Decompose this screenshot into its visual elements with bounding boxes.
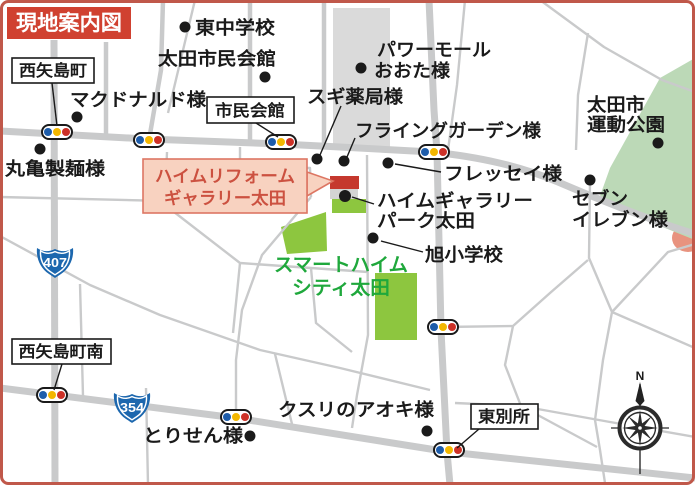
intersection-civic-hall: 市民会館 [207, 97, 294, 123]
smart-heim-field-north [332, 199, 366, 213]
label-sugi: スギ薬局様 [307, 86, 404, 107]
destination-building [330, 176, 359, 189]
intersection-nishiyajima-minami-label: 西矢島町南 [19, 342, 104, 361]
intersection-nishiyajima-label: 西矢島町 [19, 61, 87, 80]
poi-dot-torisen [245, 431, 256, 442]
label-kusuri-no-aoki: クスリのアオキ様 [278, 399, 435, 420]
poi-dot-sports-park [653, 138, 664, 149]
label-higashi-junior-high: 東中学校 [195, 17, 276, 38]
intersection-civic-hall-label: 市民会館 [215, 101, 285, 120]
poi-dot-seven-eleven [585, 175, 596, 186]
label-mcdonalds: マクドナルド様 [70, 89, 207, 110]
traffic-light-icon [428, 320, 458, 334]
label-fressay: フレッセイ様 [444, 163, 563, 184]
label-flying-garden: フライングガーデン様 [355, 120, 542, 141]
site-map: 407 354 [0, 0, 695, 485]
poi-dot-mcdonalds [72, 112, 83, 123]
traffic-light-icon [221, 410, 251, 424]
traffic-light-icon [419, 145, 449, 159]
traffic-light-icon [266, 135, 296, 149]
page-title: 現地案内図 [16, 11, 122, 35]
label-smart-heim-line2: シティ太田 [292, 276, 390, 299]
route-354-number: 354 [120, 400, 145, 415]
label-sports-park-line1: 太田市 [587, 94, 645, 115]
label-ota-civic-hall: 太田市民会館 [158, 48, 276, 69]
compass-north-label: N [636, 369, 645, 383]
traffic-light-icon [134, 133, 164, 147]
callout-line1: ハイムリフォーム [155, 167, 295, 186]
label-seven-eleven-line2: イレブン様 [572, 209, 669, 230]
title-banner: 現地案内図 [7, 7, 131, 39]
label-marugame: 丸亀製麺様 [4, 158, 106, 179]
intersection-nishiyajima-minami: 西矢島町南 [12, 339, 111, 364]
intersection-nishiyajima: 西矢島町 [12, 58, 94, 83]
poi-dot-fressay [383, 158, 394, 169]
label-heim-gallery-park-line2: パーク太田 [377, 210, 475, 231]
poi-dot-marugame [35, 144, 46, 155]
destination-callout: ハイムリフォーム ギャラリー太田 [143, 159, 333, 213]
label-power-mall-line2: おおた様 [374, 60, 451, 81]
traffic-light-icon [37, 388, 67, 402]
poi-dot-flying-garden [339, 156, 350, 167]
label-asahi: 旭小学校 [424, 244, 504, 265]
callout-line2: ギャラリー太田 [164, 188, 286, 208]
label-smart-heim-line1: スマートハイム [274, 255, 408, 276]
label-sports-park-line2: 運動公園 [587, 114, 665, 135]
label-seven-eleven-line1: セブン [572, 188, 628, 209]
poi-dot-asahi [368, 233, 379, 244]
traffic-light-icon [42, 125, 72, 139]
intersection-higashi-bessho: 東別所 [471, 404, 538, 429]
route-407-number: 407 [43, 255, 67, 270]
poi-dot-ota-civic-hall [260, 72, 271, 83]
site-map-page: 407 354 [0, 0, 695, 485]
poi-dot-sugi [312, 154, 323, 165]
intersection-higashi-bessho-label: 東別所 [478, 407, 530, 426]
poi-dot-kusuri-no-aoki [422, 426, 433, 437]
poi-dot-power-mall [356, 63, 367, 74]
label-heim-gallery-park-line1: ハイムギャラリー [377, 191, 533, 211]
poi-dot-heim-gallery-park [339, 190, 351, 202]
poi-dot-higashi-junior-high [180, 22, 191, 33]
label-torisen: とりせん様 [143, 425, 244, 446]
label-power-mall-line1: パワーモール [377, 40, 491, 60]
